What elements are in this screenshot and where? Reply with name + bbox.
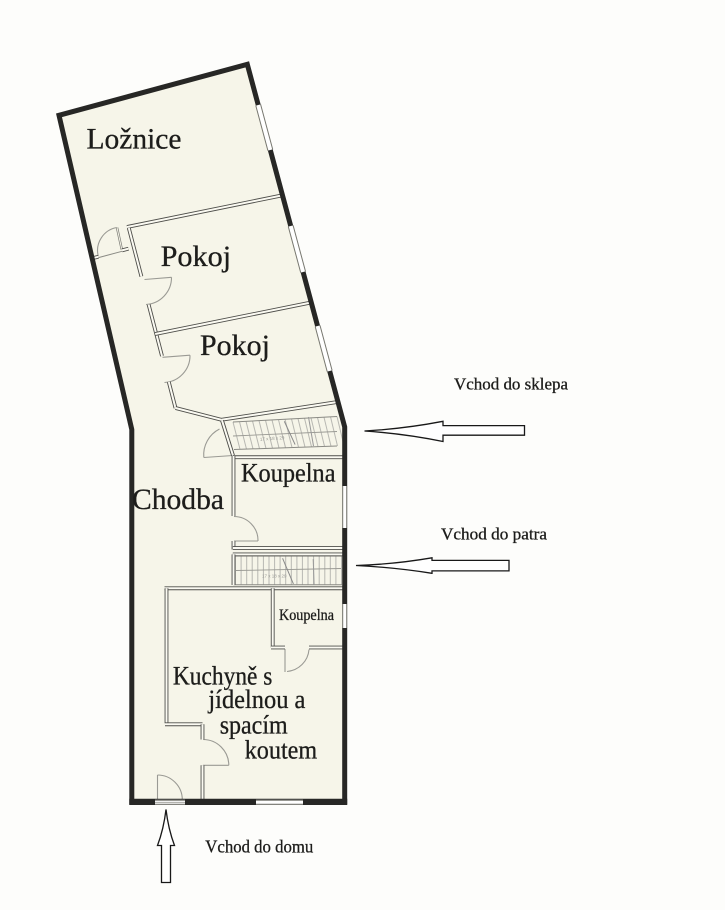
svg-text:koutem: koutem	[245, 735, 318, 764]
svg-text:Pokoj: Pokoj	[161, 240, 232, 273]
svg-text:Pokoj: Pokoj	[200, 329, 270, 362]
svg-text:17 x 18 x 29: 17 x 18 x 29	[262, 574, 287, 579]
svg-text:Vchod do sklepa: Vchod do sklepa	[454, 375, 569, 394]
svg-text:Vchod do patra: Vchod do patra	[441, 525, 548, 544]
svg-text:Chodba: Chodba	[132, 483, 224, 516]
svg-text:Koupelna: Koupelna	[241, 459, 336, 488]
svg-text:Koupelna: Koupelna	[279, 607, 334, 624]
svg-text:Ložnice: Ložnice	[87, 123, 182, 156]
svg-text:Vchod do domu: Vchod do domu	[205, 837, 313, 857]
